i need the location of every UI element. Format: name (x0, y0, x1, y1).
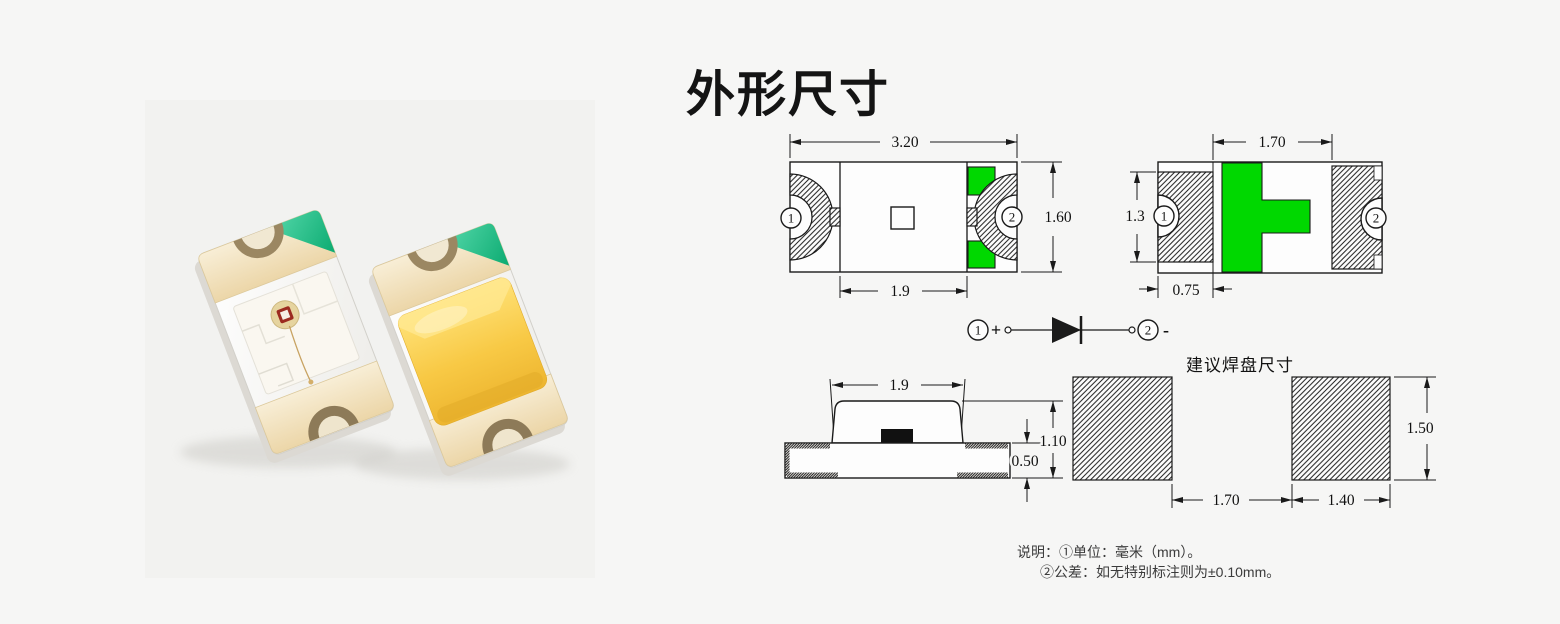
dim-base-height-label: 0.50 (1011, 453, 1038, 470)
dim-inner-width-label: 1.9 (890, 283, 910, 300)
terminal-strip (786, 445, 790, 476)
terminal-strip (787, 444, 830, 449)
terminal-dot (1129, 327, 1135, 333)
terminal-strip (957, 473, 1008, 478)
extension-lines (1172, 484, 1390, 508)
dim-pad-width-label: 1.40 (1327, 492, 1354, 509)
dim-terminal-height-label: 1.3 (1125, 208, 1145, 225)
dim-gap-label: 1.70 (1212, 492, 1239, 509)
anode-stub (830, 208, 840, 226)
cathode-stub (967, 208, 977, 226)
pin1-number: 1 (788, 211, 795, 226)
diode-symbol (1052, 317, 1081, 343)
chip-block (881, 429, 913, 443)
dim-width-label: 3.20 (891, 134, 918, 151)
dim-lens-width-label: 1.9 (889, 377, 909, 394)
drawing-canvas: 3.20 1 2 1.60 1.9 1 2 (0, 0, 1560, 624)
pin1-number: 1 (1161, 209, 1168, 224)
product-photo (145, 100, 595, 578)
terminal-strip (787, 473, 838, 478)
cathode-corner-step (1374, 166, 1382, 180)
pad-left (1073, 377, 1172, 480)
polarity-diagram: 1 + 2 - (968, 316, 1169, 344)
die-marker-square (891, 207, 914, 229)
bottom-view-drawing: 1 2 1.70 1.3 0.75 (1125, 134, 1386, 299)
terminal-dot (1005, 327, 1011, 333)
note-units: 说明：①单位：毫米（mm）。 (1017, 542, 1201, 562)
terminal-strip (965, 444, 1008, 449)
pin1-number: 1 (975, 323, 982, 338)
dim-pad-height-label: 1.50 (1406, 420, 1433, 437)
top-view-drawing: 3.20 1 2 1.60 1.9 (781, 134, 1072, 300)
side-view-drawing: 1.9 0.50 1.10 (785, 377, 1067, 502)
dim-terminal-width-label: 0.75 (1172, 282, 1199, 299)
pin2-number: 2 (1373, 211, 1380, 226)
pin2-number: 2 (1145, 323, 1152, 338)
dim-gap-label: 1.70 (1258, 134, 1285, 151)
pad-layout-title: 建议焊盘尺寸 (1186, 356, 1294, 375)
pad-right (1292, 377, 1390, 480)
pin2-number: 2 (1009, 210, 1016, 225)
cathode-corner-step (1374, 255, 1382, 269)
minus-sign: - (1163, 320, 1169, 340)
pad-layout-drawing: 建议焊盘尺寸 1.50 1.70 1.40 (1073, 356, 1436, 509)
plus-sign: + (991, 320, 1001, 340)
note-tolerance: ②公差：如无特别标注则为±0.10mm。 (1040, 562, 1280, 582)
dim-total-height-label: 1.10 (1039, 433, 1066, 450)
dim-height-label: 1.60 (1044, 209, 1071, 226)
